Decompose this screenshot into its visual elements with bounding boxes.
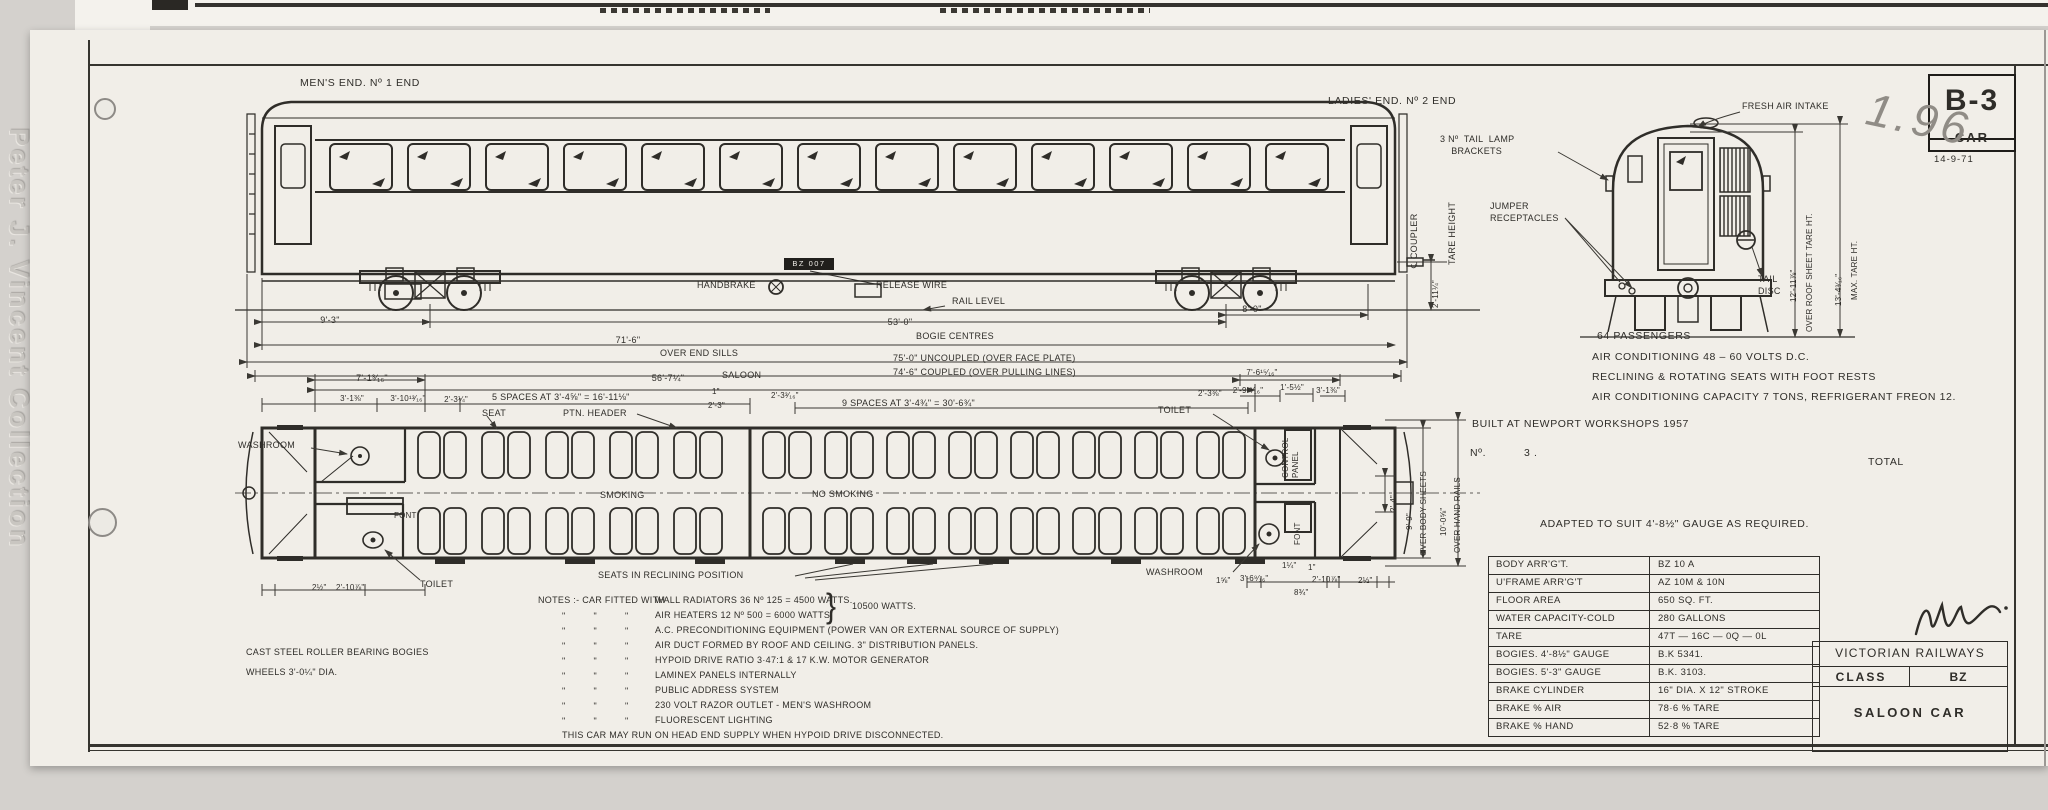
bogie-note-line2: WHEELS 3'-0¼" DIA. [246, 668, 337, 678]
dim-over-rails: 10'-0⅝" [1440, 508, 1449, 536]
ditto-marks: " " " [562, 671, 629, 683]
spaces-right-label: 9 SPACES AT 3'-4¾" = 30'-6¾" [842, 399, 975, 409]
table-row: BRAKE CYLINDER16" DIA. X 12" STROKE [1489, 682, 1819, 700]
previous-sheet-border [195, 3, 2048, 7]
dim-br7: 1" [1308, 564, 1316, 573]
note-item: PUBLIC ADDRESS SYSTEM [655, 686, 779, 696]
spec-label: BOGIES. 5'-3" GAUGE [1489, 665, 1650, 682]
ditto-marks: " " " [562, 716, 629, 728]
spec-label: BOGIES. 4'-8½" GAUGE [1489, 647, 1650, 664]
number-plate: BZ 007 [784, 258, 834, 270]
spec-label: BODY ARR'G'T. [1489, 557, 1650, 574]
adapted-line: ADAPTED TO SUIT 4'-8½" GAUGE AS REQUIRED… [1540, 519, 1809, 531]
punch-hole [88, 508, 117, 537]
class-value: BZ [1910, 667, 2007, 686]
ditto-marks: " " " [562, 656, 629, 668]
dim-br2: 3'-6⁹⁄₁₆" [1240, 575, 1268, 584]
spec-label: BRAKE % AIR [1489, 701, 1650, 718]
side-elevation-drawing [235, 88, 1480, 388]
sheet-border-right [2014, 64, 2016, 746]
built-line: BUILT AT NEWPORT WORKSHOPS 1957 [1472, 419, 1689, 431]
note-item: LAMINEX PANELS INTERNALLY [655, 671, 797, 681]
coupler-label: ℄ COUPLER [1410, 214, 1420, 269]
bogie-centres-label: BOGIE CENTRES [916, 332, 994, 342]
smoking-label: SMOKING [600, 491, 645, 501]
dim-uncoupled: 75'-0" UNCOUPLED (OVER FACE PLATE) [893, 354, 1076, 364]
note-item: A.C. PRECONDITIONING EQUIPMENT (POWER VA… [655, 626, 1059, 636]
dim-door: 2'-4" [1390, 495, 1399, 512]
reclining-label: SEATS IN RECLINING POSITION [598, 571, 743, 581]
table-row: U'FRAME ARR'G'TAZ 10M & 10N [1489, 574, 1819, 592]
note-item: AIR DUCT FORMED BY ROOF AND CEILING. 3" … [655, 641, 978, 651]
max-tare-label: MAX. TARE HT. [1851, 241, 1860, 300]
spec-value: BZ 10 A [1650, 557, 1819, 574]
passengers-line: 64 PASSENGERS [1597, 331, 1691, 343]
spec-label: BRAKE % HAND [1489, 719, 1650, 736]
dim-k: 3'-1⅜" [1316, 387, 1340, 396]
seats-line: RECLINING & ROTATING SEATS WITH FOOT RES… [1592, 372, 1876, 384]
tail-lamp-label: 3 Nº TAIL LAMP BRACKETS [1440, 134, 1514, 157]
notes-brace: } [826, 587, 836, 626]
notes-intro: NOTES :- CAR FITTED WITH [538, 596, 665, 606]
spec-table: BODY ARR'G'T.BZ 10 A U'FRAME ARR'G'TAZ 1… [1488, 556, 1820, 737]
tare-height-label: TARE HEIGHT [1448, 202, 1458, 265]
dim-max-tare: 13'-4³⁄₁₆" [1835, 274, 1844, 306]
ditto-marks: " " " [562, 626, 629, 638]
previous-sheet-mark [152, 0, 188, 10]
dim-g: 2'-3⅜" [1198, 390, 1222, 399]
table-row: WATER CAPACITY-COLD280 GALLONS [1489, 610, 1819, 628]
table-row: BRAKE % AIR78·6 % TARE [1489, 700, 1819, 718]
font-right-label: FONT [1294, 522, 1303, 545]
spec-label: FLOOR AREA [1489, 593, 1650, 610]
table-row: BRAKE % HAND52·8 % TARE [1489, 718, 1819, 736]
control-panel-label: CONTROL PANEL [1281, 437, 1302, 478]
dim-j: 1'-5½" [1280, 384, 1304, 393]
table-row: BOGIES. 4'-8½" GAUGEB.K 5341. [1489, 646, 1819, 664]
no-smoking-label: NO SMOKING [812, 490, 874, 500]
ditto-marks: " " " [562, 686, 629, 698]
fresh-air-label: FRESH AIR INTAKE [1742, 102, 1829, 112]
over-rails-label: OVER HAND RAILS [1454, 477, 1463, 553]
dim-d: 1" [712, 388, 720, 397]
spec-value: 280 GALLONS [1650, 611, 1819, 628]
dim-br1: 1⅝" [1216, 577, 1231, 586]
spec-label: BRAKE CYLINDER [1489, 683, 1650, 700]
font-left-label: FONT [394, 512, 417, 521]
dim-end-bay: 7'-1³⁄₁₆" [356, 374, 388, 384]
spec-value: 52·8 % TARE [1650, 719, 1819, 736]
mens-end-label: MEN'S END. Nº 1 END [300, 78, 420, 90]
dim-bogie-centres: 53'-0" [888, 318, 913, 328]
dim-a: 3'-1⅜" [340, 395, 364, 404]
spec-value: 78·6 % TARE [1650, 701, 1819, 718]
note-item: FLUORESCENT LIGHTING [655, 716, 773, 726]
air-conditioning-line: AIR CONDITIONING 48 – 60 VOLTS D.C. [1592, 352, 1809, 364]
spec-label: TARE [1489, 629, 1650, 646]
capacity-line: AIR CONDITIONING CAPACITY 7 TONS, REFRIG… [1592, 392, 1956, 404]
washroom-right-label: WASHROOM [1146, 568, 1203, 578]
notes-footer: THIS CAR MAY RUN ON HEAD END SUPPLY WHEN… [562, 731, 943, 741]
handbrake-label: HANDBRAKE [697, 281, 756, 291]
note-item: WALL RADIATORS 36 Nº 125 = 4500 WATTS. [655, 596, 853, 606]
toilet-left-label: TOILET [420, 580, 453, 590]
dim-e: 2'-3" [708, 402, 725, 411]
sheet-edge [2044, 30, 2046, 766]
sheet-border-bottom [88, 744, 2048, 747]
dim-bogie-wheelbase: 9'-3" [320, 316, 339, 326]
car-type: SALOON CAR [1813, 687, 2007, 751]
railway-name: VICTORIAN RAILWAYS [1813, 642, 2007, 667]
table-row: FLOOR AREA650 SQ. FT. [1489, 592, 1819, 610]
number-label: Nº. [1470, 448, 1486, 460]
title-block: VICTORIAN RAILWAYS CLASS BZ SALOON CAR [1812, 641, 2008, 752]
table-row: BOGIES. 5'-3" GAUGEB.K. 3103. [1489, 664, 1819, 682]
signature [1912, 598, 2022, 640]
note-item: HYPOID DRIVE RATIO 3·47:1 & 17 K.W. MOTO… [655, 656, 929, 666]
dim-roof-tare: 12'-11⅞" [1790, 269, 1799, 302]
spec-value: AZ 10M & 10N [1650, 575, 1819, 592]
class-label: CLASS [1813, 667, 1910, 686]
spaces-left-label: 5 SPACES AT 3'-4⅝" = 16'-11⅛" [492, 393, 630, 403]
spec-value: 650 SQ. FT. [1650, 593, 1819, 610]
jumper-label: JUMPER RECEPTACLES [1490, 201, 1559, 224]
spec-label: U'FRAME ARR'G'T [1489, 575, 1650, 592]
dim-f: 2'-3³⁄₁₆" [771, 392, 799, 401]
table-row: BODY ARR'G'T.BZ 10 A [1489, 557, 1819, 574]
ptn-header-label: PTN. HEADER [563, 409, 627, 419]
spec-value: 47T — 16C — 0Q — 0L [1650, 629, 1819, 646]
seat-label: SEAT [482, 409, 506, 419]
previous-sheet-tab [75, 0, 150, 34]
saloon-label: SALOON [722, 371, 761, 381]
dim-coupler-height: 2'-11¼" [1432, 280, 1441, 308]
number-value: 3 . [1524, 448, 1537, 460]
ditto-marks: " " " [562, 641, 629, 653]
spec-label: WATER CAPACITY-COLD [1489, 611, 1650, 628]
over-body-label: OVER BODY SHEETS [1420, 471, 1429, 556]
dim-c: 2'-3¼" [444, 396, 468, 405]
roof-tare-label: OVER ROOF SHEET TARE HT. [1806, 213, 1815, 332]
scanned-drawing: Peter J. Vincent Collection [0, 0, 2048, 810]
punch-hole [94, 98, 116, 120]
dim-bl2: 2'-10⅞" [336, 584, 364, 593]
previous-sheet-text-smudge [600, 8, 770, 13]
dim-bogie-to-end: 8'-0" [1242, 305, 1261, 315]
spec-value: B.K. 3103. [1650, 665, 1819, 682]
dim-br5: 2½" [1358, 577, 1373, 586]
washroom-left-label: WASHROOM [238, 441, 295, 451]
total-label: TOTAL [1868, 457, 1904, 469]
dim-bl1: 2½" [312, 584, 327, 593]
dim-h: 7'-6¹⁵⁄₁₆" [1246, 369, 1277, 378]
dim-br6: 1¼" [1282, 562, 1297, 571]
bogie-note-line1: CAST STEEL ROLLER BEARING BOGIES [246, 648, 429, 658]
dim-br4: 2'-10⅞" [1312, 576, 1340, 585]
dim-i: 2'-9¹³⁄₁₆" [1233, 387, 1264, 396]
radiators-total: 10500 WATTS. [852, 602, 916, 612]
ditto-marks: " " " [562, 611, 629, 623]
dim-b: 3'-10¹³⁄₁₆" [390, 395, 425, 404]
over-end-sills-label: OVER END SILLS [660, 349, 738, 359]
spec-value: 16" DIA. X 12" STROKE [1650, 683, 1819, 700]
toilet-right-label: TOILET [1158, 406, 1191, 416]
drawing-date: 14-9-71 [1934, 154, 1974, 165]
table-row: TARE47T — 16C — 0Q — 0L [1489, 628, 1819, 646]
rail-level-label: RAIL LEVEL [952, 297, 1005, 307]
release-wire-label: RELEASE WIRE [876, 281, 947, 291]
sheet-border-top [88, 64, 2048, 66]
sheet-border-left [88, 40, 90, 752]
spec-value: B.K 5341. [1650, 647, 1819, 664]
dim-br3: 8¾" [1294, 589, 1309, 598]
previous-sheet-text-smudge [940, 8, 1150, 13]
note-item: AIR HEATERS 12 Nº 500 = 6000 WATTS. [655, 611, 833, 621]
dim-over-end-sills: 71'-6" [616, 336, 641, 346]
sheet-border-bottom2 [88, 750, 2048, 751]
ditto-marks: " " " [562, 701, 629, 713]
ladies-end-label: LADIES' END. Nº 2 END [1328, 96, 1456, 108]
dim-coupled: 74'-6" COUPLED (OVER PULLING LINES) [893, 368, 1076, 378]
note-item: 230 VOLT RAZOR OUTLET - MEN'S WASHROOM [655, 701, 871, 711]
tail-disc-label: TAIL DISC [1758, 274, 1781, 297]
dim-saloon: 56'-7¼" [652, 374, 685, 384]
dim-over-body: 9'-9" [1406, 513, 1415, 530]
